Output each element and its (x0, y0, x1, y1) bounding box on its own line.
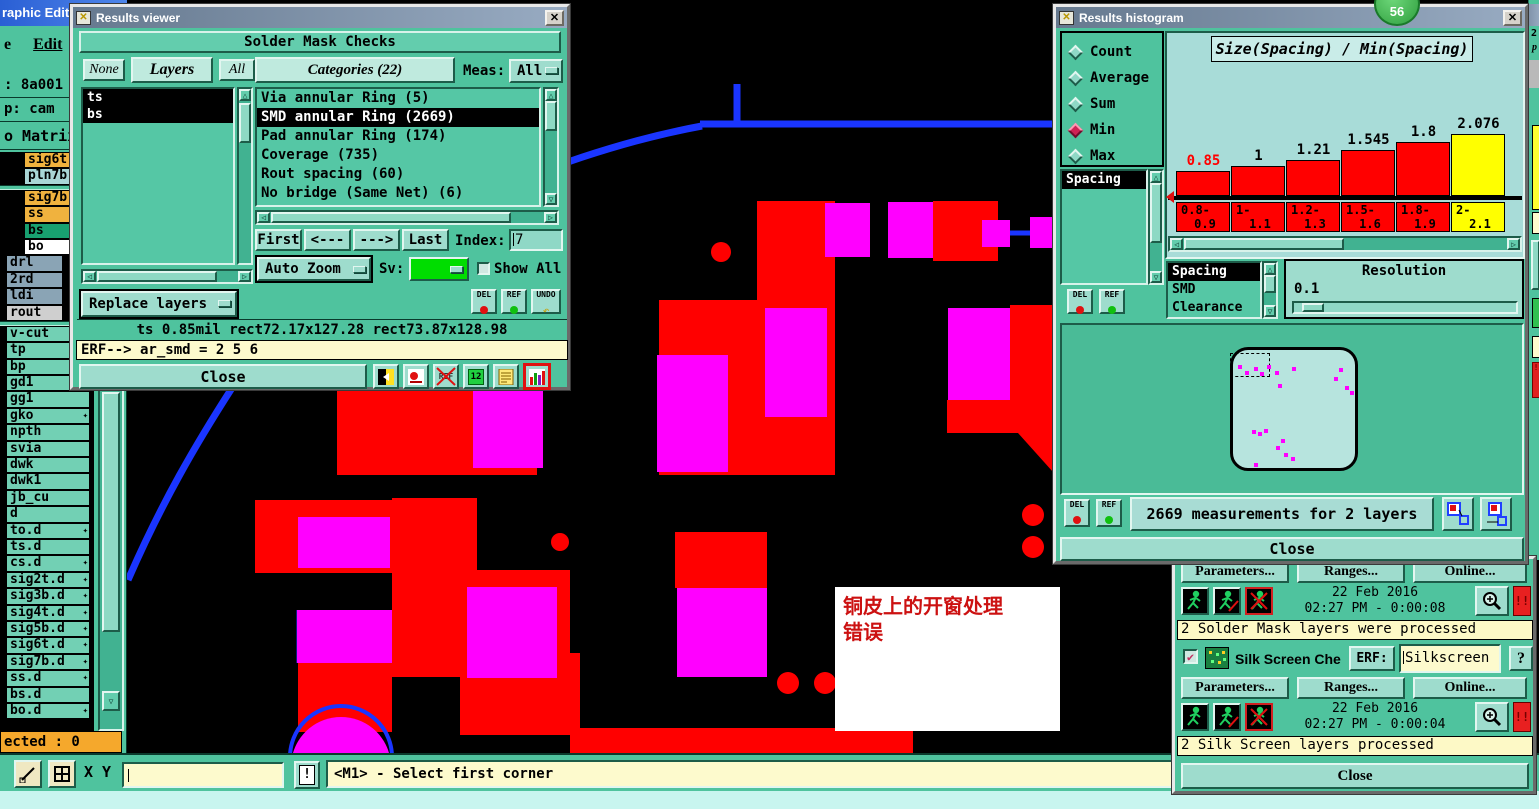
silkscreen-check-label: Silk Screen Che (1235, 651, 1341, 667)
defect-dot (1267, 365, 1271, 369)
layer-arrow-icon: ✦ (83, 525, 88, 537)
histogram-icon (529, 369, 545, 385)
layer-arrow-icon: ✦ (83, 639, 88, 651)
sv-color-dropdown[interactable] (409, 257, 469, 281)
histogram-title: Results histogram (1079, 11, 1184, 25)
index-label: Index: (455, 233, 506, 249)
layer-row-gko[interactable]: gko✦ (6, 408, 90, 424)
alert-button[interactable]: ! (294, 761, 320, 789)
bar[interactable] (1231, 166, 1285, 196)
defect-dot (1245, 371, 1249, 375)
auto-zoom-dropdown[interactable]: Auto Zoom (257, 257, 371, 281)
hist-ref-button-2[interactable]: REF (1096, 499, 1122, 527)
fragment-gray (1529, 60, 1539, 88)
defect-dot (1291, 457, 1295, 461)
viewer-layer-list[interactable]: tsbs (81, 87, 235, 265)
histogram-close-button[interactable]: Close (1060, 537, 1524, 561)
layer-row-dwk[interactable]: dwk (6, 457, 90, 473)
replace-layers-dropdown[interactable]: Replace layers (81, 291, 237, 317)
xy-input[interactable] (122, 762, 284, 788)
runner-icon (1247, 589, 1271, 613)
layer-row-npth[interactable]: npth (6, 424, 90, 440)
category-item[interactable]: Via annular Ring (5) (257, 89, 539, 108)
defect-dot (1264, 429, 1268, 433)
radio-count[interactable]: Count (1070, 39, 1162, 65)
text-caret (513, 233, 514, 246)
checks-panel: Parameters... Ranges... Online... 22 Feb… (1172, 556, 1536, 794)
radio-average[interactable]: Average (1070, 65, 1162, 91)
ranges-button-1[interactable]: Ranges... (1297, 561, 1405, 583)
selected-count-bar: ected : 0 (0, 731, 122, 753)
defect-dot (1254, 367, 1258, 371)
exit-icon (378, 369, 394, 385)
red-cross-icon (435, 366, 457, 387)
snap-icon (19, 765, 37, 783)
range-cell: 1.5-1.6 (1341, 202, 1395, 232)
resolution-label: Resolution (1286, 263, 1522, 279)
annotation-line1: 铜皮上的开窗处理 (843, 593, 1052, 619)
type-item-SMD[interactable]: SMD (1168, 281, 1260, 299)
range-cell: 1.8-1.9 (1396, 202, 1450, 232)
layer-row-svia[interactable]: svia (6, 441, 90, 457)
menu-file-fragment[interactable]: e (4, 36, 11, 53)
range-cell: 1.2-1.3 (1286, 202, 1340, 232)
category-item[interactable]: No bridge (Same Net) (6) (257, 184, 539, 203)
layer-row-sig4t.d[interactable]: sig4t.d✦ (6, 605, 90, 621)
runner-icon (1183, 589, 1207, 613)
panel-close-button[interactable]: Close (1181, 763, 1529, 789)
zoom-results-button-1[interactable] (1475, 586, 1509, 616)
copy-to-layer-icon (1447, 502, 1469, 526)
radio-label: Average (1090, 70, 1149, 86)
run-timestamp-2: 22 Feb 2016 02:27 PM - 0:00:04 (1277, 701, 1473, 735)
radio-diamond-icon[interactable] (1068, 70, 1084, 86)
show-all-checkbox[interactable] (477, 262, 490, 275)
erf-command-line: ERF--> ar_smd = 2 5 6 (76, 340, 568, 360)
category-item[interactable]: Pad annular Ring (174) (257, 127, 539, 146)
histogram-button[interactable] (523, 363, 551, 390)
defect-dot (1350, 391, 1354, 395)
categories-scrollbar[interactable]: △ ▽ (543, 87, 559, 207)
stop-check-button-1[interactable] (1245, 587, 1273, 615)
layer-arrow-icon: ✦ (83, 590, 88, 602)
defect-dot (1252, 430, 1256, 434)
layer-row-drl[interactable]: drl (6, 255, 63, 271)
layer-row-sig6t.d[interactable]: sig6t.d✦ (6, 637, 90, 653)
viewer-close-button[interactable]: Close (79, 364, 367, 389)
next-button[interactable]: ---> (353, 229, 400, 251)
text-caret (128, 769, 129, 782)
bar[interactable] (1286, 160, 1340, 196)
magnifier-icon (1480, 589, 1504, 613)
layer-row-gg1[interactable]: gg1 (6, 391, 90, 407)
layer-row-cs.d[interactable]: cs.d✦ (6, 555, 90, 571)
layer-arrow-icon: ✦ (83, 607, 88, 619)
alert-flag-1[interactable]: !! (1513, 586, 1531, 616)
fragment-green (1532, 298, 1539, 328)
radio-max[interactable]: Max (1070, 143, 1162, 169)
measure-list[interactable]: Spacing (1060, 169, 1148, 285)
range-cell: 1-1.1 (1231, 202, 1285, 232)
option-dash-icon (450, 266, 463, 273)
green-dot-icon (510, 306, 518, 314)
histogram-bars: 0.8511.211.5451.82.076 (1176, 104, 1508, 196)
radio-diamond-icon[interactable] (1068, 122, 1084, 138)
all-layers-button[interactable]: All (219, 59, 255, 81)
run-check-button-1[interactable] (1181, 587, 1209, 615)
layer-arrow-icon: ✦ (83, 623, 88, 635)
measure-item-Spacing[interactable]: Spacing (1062, 171, 1146, 189)
text-caret (1403, 651, 1404, 664)
chart-baseline (1168, 196, 1522, 200)
hist-del-button[interactable]: DEL (1067, 289, 1093, 314)
bar-value-label: 2.076 (1443, 116, 1514, 132)
undo-arrow-icon: ↶ (543, 304, 550, 317)
radio-label: Sum (1090, 96, 1115, 112)
window-icon: ✕ (76, 11, 91, 25)
green-dot-icon (1108, 306, 1116, 314)
ranges-button-2[interactable]: Ranges... (1297, 677, 1405, 699)
radio-diamond-icon[interactable] (1068, 44, 1084, 60)
defect-dot (1275, 371, 1279, 375)
range-cell: 0.8-0.9 (1176, 202, 1230, 232)
online-button-2[interactable]: Online... (1413, 677, 1527, 699)
run-timestamp-1: 22 Feb 2016 02:27 PM - 0:00:08 (1277, 585, 1473, 619)
green-dot-icon (1105, 516, 1113, 524)
runner-icon (1215, 705, 1239, 729)
run-partial-button-1[interactable] (1213, 587, 1241, 615)
category-item[interactable]: Rout spacing (60) (257, 165, 539, 184)
silkscreen-checkbox[interactable]: ✔ (1183, 649, 1198, 664)
menu-edit[interactable]: Edit (33, 36, 62, 53)
fragment-text-1: 2 (1531, 28, 1537, 39)
selection-dashed-rect (1230, 353, 1270, 377)
defect-dot (1281, 439, 1285, 443)
12-icon: 12 (468, 369, 484, 385)
layers-header-button[interactable]: Layers (131, 57, 213, 83)
range-cell: 2-2.1 (1451, 202, 1505, 232)
annotation-note: 铜皮上的开窗处理 错误 (835, 587, 1060, 731)
chart-hscrollbar[interactable]: ◁ ▷ (1168, 236, 1522, 252)
layer-row-sig2t.d[interactable]: sig2t.d✦ (6, 572, 90, 588)
layer-arrow-icon: ✦ (83, 574, 88, 586)
silkscreen-icon (1205, 647, 1229, 669)
layer-row-ts.d[interactable]: ts.d (6, 539, 90, 555)
layer-row-rout[interactable]: rout (6, 305, 63, 321)
defect-dot (1284, 453, 1288, 457)
erf-name-input[interactable]: Silkscreen (1399, 644, 1501, 673)
annotation-line2: 错误 (843, 619, 1052, 645)
layer-arrow-icon: ✦ (83, 410, 88, 422)
document-icon (498, 369, 514, 385)
categories-hscrollbar[interactable]: ◁ ▷ (255, 210, 559, 225)
histogram-ranges: 0.8-0.91-1.11.2-1.31.5-1.61.8-1.92-2.1 (1176, 202, 1508, 232)
run-partial-button-2[interactable] (1213, 703, 1241, 731)
show-all-label: Show All (494, 261, 561, 277)
export-all-button[interactable] (1480, 497, 1512, 531)
option-dash-icon (218, 300, 231, 307)
first-button[interactable]: First (255, 229, 302, 251)
close-icon[interactable]: ✕ (545, 10, 564, 26)
undo-button[interactable]: UNDO↶ (531, 289, 561, 314)
viewer-layer-bs[interactable]: bs (83, 106, 233, 123)
numeric-list-button[interactable]: 12 (463, 364, 489, 389)
scrollbar-thumb[interactable] (102, 392, 120, 632)
status-bar: <M1> - Select first corner (326, 760, 1176, 788)
bar[interactable] (1396, 142, 1450, 196)
none-button[interactable]: None (83, 59, 125, 81)
defect-dot (1260, 372, 1264, 376)
online-button-1[interactable]: Online... (1413, 561, 1527, 583)
type-item-Clearance[interactable]: Clearance (1168, 299, 1260, 317)
auto-zoom-frame: Auto Zoom (255, 255, 373, 283)
layer-row-bs.d[interactable]: bs.d (6, 687, 90, 703)
run-check-button-2[interactable] (1181, 703, 1209, 731)
layer-row-dwk1[interactable]: dwk1 (6, 473, 90, 489)
viewer-layer-ts[interactable]: ts (83, 89, 233, 106)
copy-all-to-layer-icon (1485, 502, 1507, 526)
fragment-yellow (1532, 125, 1539, 210)
viewer-titlebar[interactable]: ✕ Results viewer ✕ (73, 7, 567, 28)
layer-arrow-icon: ✦ (83, 656, 88, 668)
defect-dot (1254, 463, 1258, 467)
magnifier-icon (1480, 705, 1504, 729)
baseline-marker (1166, 191, 1174, 203)
help-button[interactable]: ? (1509, 646, 1533, 671)
fragment-scroll (1531, 240, 1539, 290)
stop-check-button-2[interactable] (1245, 703, 1273, 731)
defect-dot (1334, 377, 1338, 381)
resolution-slider[interactable] (1292, 301, 1518, 314)
radio-label: Count (1090, 44, 1132, 60)
resolution-value: 0.1 (1294, 281, 1522, 297)
report-button[interactable] (493, 364, 519, 389)
layer-row-d[interactable]: d (6, 506, 90, 522)
category-item[interactable]: Coverage (735) (257, 146, 539, 165)
defect-dot (1339, 368, 1343, 372)
layer-row-sig7b.d[interactable]: sig7b.d✦ (6, 654, 90, 670)
last-button[interactable]: Last (402, 229, 449, 251)
radio-diamond-icon[interactable] (1068, 96, 1084, 112)
prev-button[interactable]: <--- (304, 229, 351, 251)
parameters-button-1[interactable]: Parameters... (1181, 561, 1289, 583)
bar[interactable] (1341, 150, 1395, 196)
bar[interactable] (1451, 134, 1505, 196)
chart-title: Size(Spacing) / Min(Spacing) (1211, 36, 1473, 62)
results-histogram-window: ✕ Results histogram ✕ CountAverageSumMin… (1053, 4, 1528, 564)
badge-count: 56 (1376, 4, 1418, 19)
red-dot-icon (480, 306, 488, 314)
fragment-cream (1532, 212, 1539, 234)
measure-dot-button[interactable] (403, 364, 429, 389)
slider-thumb[interactable] (1302, 303, 1324, 312)
defect-dot (1278, 384, 1282, 388)
right-edge-window-fragment: 2 p ! (1528, 0, 1539, 560)
meas-label: Meas: (463, 63, 505, 79)
runner-icon (1183, 705, 1207, 729)
hist-ref-button[interactable]: REF (1099, 289, 1125, 314)
results-viewer-window: ✕ Results viewer ✕ Solder Mask Checks No… (70, 4, 570, 390)
ref-button[interactable]: REF (501, 289, 527, 314)
erf-button[interactable]: ERF: (1349, 646, 1395, 671)
option-dash-icon (353, 266, 366, 273)
fragment-titlebar (1529, 4, 1539, 26)
defect-dot (1258, 432, 1262, 436)
radio-label: Min (1090, 122, 1115, 138)
category-item[interactable]: SMD annular Ring (2669) (257, 108, 539, 127)
layer-arrow-icon: ✦ (83, 557, 88, 569)
red-dot-icon (1073, 516, 1081, 524)
board-preview[interactable] (1060, 323, 1524, 495)
statistic-radio-group: CountAverageSumMinMax (1060, 31, 1164, 167)
check-status-2: 2 Silk Screen layers processed (1177, 736, 1533, 756)
scroll-down-arrow-icon[interactable]: ▽ (102, 691, 120, 711)
close-icon[interactable]: ✕ (1503, 10, 1522, 26)
layer-arrow-icon: ✦ (83, 672, 88, 684)
type-list-scrollbar[interactable]: △ ▽ (1262, 261, 1278, 319)
measure-icon (408, 369, 424, 385)
measure-type-list[interactable]: SpacingSMDClearance (1166, 261, 1262, 319)
exit-report-button[interactable] (373, 364, 399, 389)
viewer-title: Results viewer (96, 11, 180, 25)
viewer-layers-scrollbar[interactable]: △ (237, 87, 253, 265)
alert-flag-2[interactable]: !! (1513, 702, 1531, 732)
layer-row-ss.d[interactable]: ss.d✦ (6, 670, 90, 686)
radio-min[interactable]: Min (1070, 117, 1162, 143)
option-dash-icon (545, 67, 558, 74)
defect-dot (1276, 446, 1280, 450)
measurement-status: ts 0.85mil rect72.17x127.28 rect73.87x12… (77, 319, 567, 339)
parameters-button-2[interactable]: Parameters... (1181, 677, 1289, 699)
radio-diamond-icon[interactable] (1068, 148, 1084, 164)
meas-dropdown[interactable]: All (509, 59, 563, 83)
layer-row-ldi[interactable]: ldi (6, 288, 63, 304)
defect-dot (1292, 367, 1296, 371)
zoom-results-button-2[interactable] (1475, 702, 1509, 732)
measure-list-scrollbar[interactable]: △ ▽ (1148, 169, 1164, 285)
hist-del-button-2[interactable]: DEL (1064, 499, 1090, 527)
clear-ref-button[interactable]: REF (433, 364, 459, 389)
measurements-summary: 2669 measurements for 2 layers (1130, 497, 1434, 531)
del-button[interactable]: DEL (471, 289, 497, 314)
radio-label: Max (1090, 148, 1115, 164)
tile-windows-button[interactable] (48, 760, 76, 788)
application-root: { "colors":{"pcb_red":"#ff0000","pcb_mag… (0, 0, 1539, 809)
window-icon: ✕ (1059, 11, 1074, 25)
defect-dot (1345, 386, 1349, 390)
runner-icon (1215, 589, 1239, 613)
snap-mode-button[interactable] (14, 760, 42, 788)
layer-row-to.d[interactable]: to.d✦ (6, 523, 90, 539)
histogram-titlebar[interactable]: ✕ Results histogram ✕ (1056, 7, 1525, 28)
viewer-layers-hscrollbar[interactable]: ◁ ▷ (81, 269, 253, 284)
bar[interactable] (1176, 171, 1230, 196)
type-item-Spacing[interactable]: Spacing (1168, 263, 1260, 281)
export-selected-button[interactable] (1442, 497, 1474, 531)
layer-row-bo.d[interactable]: bo.d✦ (6, 703, 90, 719)
resolution-panel: Resolution 0.1 (1284, 259, 1524, 319)
index-input[interactable]: 7 (509, 229, 563, 251)
fragment-cream2 (1532, 336, 1539, 358)
fragment-alert: ! (1532, 362, 1539, 398)
runner-icon (1247, 705, 1271, 729)
layer-row-sig5b.d[interactable]: sig5b.d✦ (6, 621, 90, 637)
sv-label: Sv: (379, 261, 404, 277)
layer-row-sig3b.d[interactable]: sig3b.d✦ (6, 588, 90, 604)
defect-dot (1238, 365, 1242, 369)
layer-arrow-icon: ✦ (83, 705, 88, 717)
layer-row-jb_cu[interactable]: jb_cu (6, 490, 90, 506)
grid-icon (53, 765, 71, 783)
check-status-1: 2 Solder Mask layers were processed (1177, 620, 1533, 640)
categories-header: Categories (22) (255, 57, 455, 83)
fragment-text-2: p (1532, 42, 1537, 53)
layer-row-2rd[interactable]: 2rd (6, 272, 63, 288)
categories-list[interactable]: Via annular Ring (5)SMD annular Ring (26… (255, 87, 541, 207)
viewer-header: Solder Mask Checks (79, 31, 561, 53)
red-dot-icon (1076, 306, 1084, 314)
exclamation-icon: ! (299, 765, 315, 785)
radio-sum[interactable]: Sum (1070, 91, 1162, 117)
